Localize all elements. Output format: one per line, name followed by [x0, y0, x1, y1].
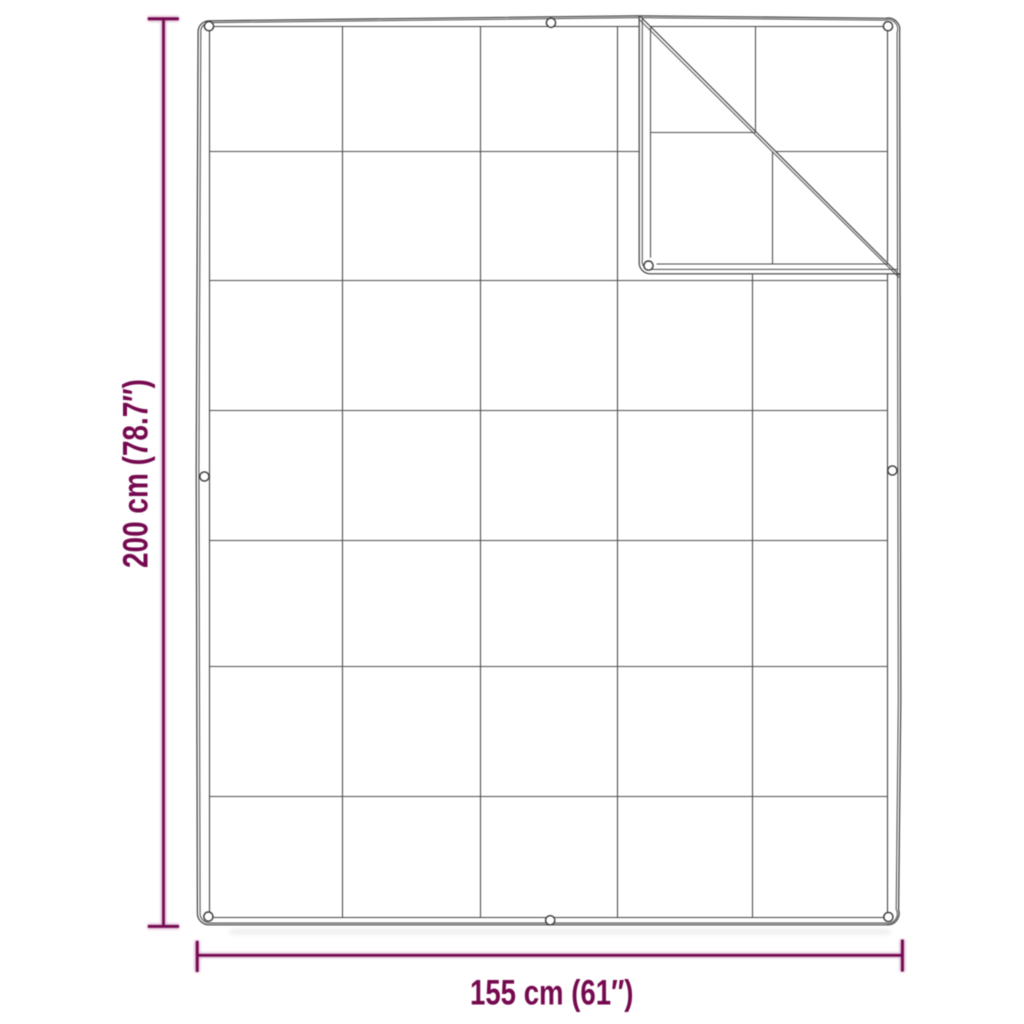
svg-text:155 cm (61″): 155 cm (61″) [470, 972, 634, 1012]
svg-text:200 cm (78.7″): 200 cm (78.7″) [116, 379, 156, 568]
